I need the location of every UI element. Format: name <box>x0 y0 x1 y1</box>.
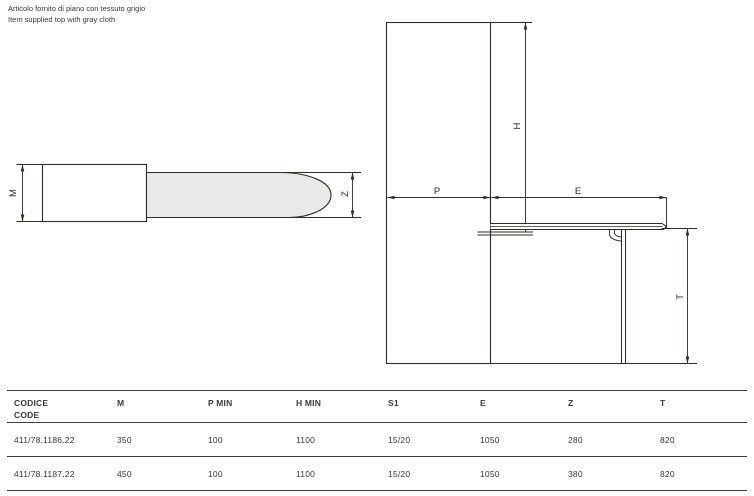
header-codice: CODICE CODE <box>7 397 110 422</box>
cell-h-min: 1100 <box>289 435 381 445</box>
header-z: Z <box>561 397 653 422</box>
dimension-t: T <box>662 229 697 364</box>
cell-p-min: 100 <box>201 435 289 445</box>
dim-label-e: E <box>575 186 581 197</box>
cell-code: 411/78.1186.22 <box>7 435 110 445</box>
dim-label-z: Z <box>340 191 351 197</box>
dim-label-p: P <box>434 186 440 197</box>
cell-m: 350 <box>110 435 201 445</box>
spec-table-header-row: CODICE CODE M P MIN H MIN S1 E Z T <box>7 390 747 422</box>
table-row: 411/78.1187.22 450 100 1100 15/20 1050 3… <box>7 456 747 490</box>
cell-h-min: 1100 <box>289 469 381 479</box>
dim-label-t: T <box>675 294 686 300</box>
spec-table: CODICE CODE M P MIN H MIN S1 E Z T 411/7… <box>7 390 747 491</box>
cell-e: 1050 <box>473 469 561 479</box>
cell-s1: 15/20 <box>381 435 473 445</box>
header-h-min: H MIN <box>289 397 381 422</box>
header-m: M <box>110 397 201 422</box>
cell-t: 820 <box>653 469 747 479</box>
cell-e: 1050 <box>473 435 561 445</box>
side-view-drawing: H P E <box>387 23 698 364</box>
support-bracket <box>610 230 622 242</box>
cell-p-min: 100 <box>201 469 289 479</box>
header-t: T <box>653 397 747 422</box>
board-leg <box>622 230 626 364</box>
header-s1: S1 <box>381 397 473 422</box>
header-e: E <box>473 397 561 422</box>
table-row: 411/78.1186.22 350 100 1100 15/20 1050 2… <box>7 422 747 456</box>
technical-drawings: M Z H P <box>0 0 754 385</box>
catalog-page: { "note": { "heading": "NOTE", "line_ita… <box>0 0 754 496</box>
cell-s1: 15/20 <box>381 469 473 479</box>
ironing-board-top-view <box>147 173 332 218</box>
dimension-h: H <box>512 23 527 232</box>
cell-z: 380 <box>561 469 653 479</box>
dimension-z: Z <box>340 173 354 218</box>
cell-m: 450 <box>110 469 201 479</box>
cell-code: 411/78.1187.22 <box>7 469 110 479</box>
dim-label-h: H <box>512 122 523 129</box>
top-view-drawing: M Z <box>8 165 361 222</box>
dim-label-m: M <box>8 189 19 197</box>
cell-t: 820 <box>653 435 747 445</box>
wall-box-top-view <box>43 165 147 222</box>
dimension-e: E <box>492 186 667 228</box>
cell-z: 280 <box>561 435 653 445</box>
dimension-m: M <box>8 165 43 222</box>
header-p-min: P MIN <box>201 397 289 422</box>
